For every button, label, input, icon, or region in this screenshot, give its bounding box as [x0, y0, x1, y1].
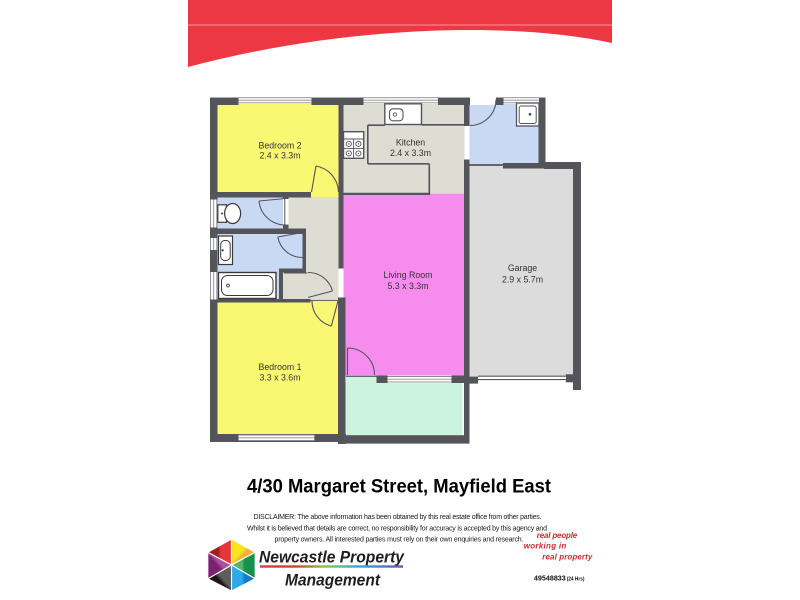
svg-text:DISCLAIMER: The above informat: DISCLAIMER: The above information has be…	[254, 514, 542, 521]
svg-text:Living Room: Living Room	[384, 270, 433, 280]
svg-text:Bedroom 2: Bedroom 2	[258, 140, 301, 150]
svg-text:Kitchen: Kitchen	[396, 137, 425, 147]
svg-text:property owners. All intereste: property owners. All interested parties …	[275, 536, 524, 543]
svg-text:Newcastle Property: Newcastle Property	[259, 549, 405, 567]
svg-text:4/30 Margaret Street, Mayfield: 4/30 Margaret Street, Mayfield East	[247, 477, 552, 498]
svg-text:2.4 x 3.3m: 2.4 x 3.3m	[259, 150, 300, 160]
svg-text:2.9 x 5.7m: 2.9 x 5.7m	[502, 275, 543, 285]
svg-text:Bedroom 1: Bedroom 1	[258, 362, 301, 372]
svg-text:5.3 x 3.3m: 5.3 x 3.3m	[387, 281, 428, 291]
svg-text:2.4 x 3.3m: 2.4 x 3.3m	[390, 148, 431, 158]
svg-text:real property: real property	[542, 553, 593, 562]
svg-text:Management: Management	[285, 572, 381, 590]
svg-text:real people: real people	[537, 531, 578, 540]
svg-text:Whilst it is believed that det: Whilst it is believed that details are c…	[247, 526, 547, 533]
svg-text:Garage: Garage	[508, 263, 537, 273]
svg-text:working in: working in	[524, 541, 567, 550]
svg-text:49548833: 49548833	[534, 573, 566, 582]
svg-text:(24 Hrs): (24 Hrs)	[567, 576, 585, 582]
svg-text:3.3 x 3.6m: 3.3 x 3.6m	[259, 372, 300, 382]
